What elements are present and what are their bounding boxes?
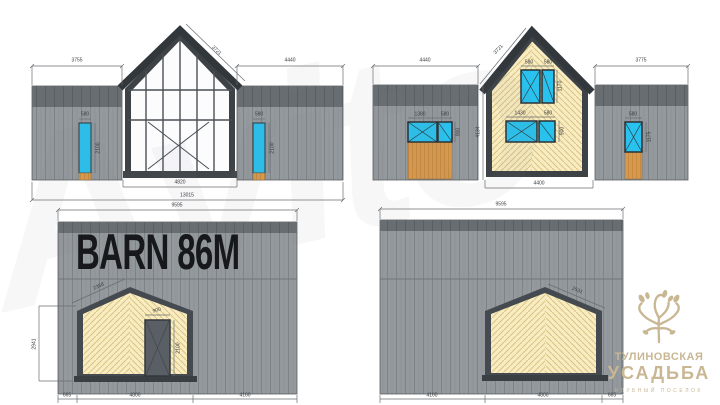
dim-rear-right-wall: 3775 <box>635 59 646 64</box>
front-left-door <box>79 123 91 173</box>
rear-elevation-drawing <box>371 28 690 188</box>
dim-rear-right-window-w: 580 <box>629 113 637 118</box>
dim-rear-wing-window-small: 580 <box>441 113 449 118</box>
dim-rear-lower-window-b: 580 <box>544 112 552 117</box>
front-left-door-step <box>79 173 91 180</box>
dim-sideR-seg-left: 4160 <box>426 394 437 399</box>
dim-front-left-door-h: 2100 <box>97 142 102 153</box>
dim-rear-gable-width: 4400 <box>533 182 544 187</box>
dim-rear-upper-window-b: 580 <box>544 61 552 66</box>
front-glazing-sill <box>123 171 237 178</box>
dim-rear-wing-window-w: 1380 <box>414 113 425 118</box>
dim-rear-upper-window-a: 580 <box>525 61 533 66</box>
front-elevation-drawing <box>30 24 345 202</box>
dim-sideR-seg-right: 665 <box>608 394 616 399</box>
logo-line1: ТУЛИНОВСКАЯ <box>598 351 720 363</box>
rear-right-window <box>625 122 642 152</box>
dim-sideR-length: 9595 <box>495 203 506 208</box>
logo-line3: клубный поселок <box>598 388 720 394</box>
dim-rear-upper-window-h: 1170 <box>559 81 564 92</box>
sideR-wall-band <box>380 220 623 231</box>
front-right-wall-band <box>237 86 343 107</box>
dim-front-right-door-w: 580 <box>255 113 263 118</box>
front-left-wall-band <box>32 86 122 107</box>
dim-rear-lower-window-a: 1430 <box>514 112 525 117</box>
sideL-door <box>145 320 170 376</box>
tree-icon <box>618 286 700 344</box>
dim-sideL-seg-mid: 4800 <box>129 394 140 399</box>
dim-sideL-seg-right: 4160 <box>239 394 250 399</box>
dim-front-left-door-w: 580 <box>81 113 89 118</box>
dim-front-total-width: 13015 <box>180 194 194 199</box>
front-right-door-step <box>253 173 265 180</box>
dim-rear-lower-window-h: 900 <box>561 127 566 135</box>
dim-sideR-seg-mid: 4800 <box>537 394 548 399</box>
logo-line2: УСАДЬБА <box>598 363 720 384</box>
rear-right-wall-band <box>595 85 688 106</box>
rear-left-wall-band <box>373 85 478 106</box>
developer-logo: ТУЛИНОВСКАЯ УСАДЬБА клубный поселок <box>598 286 720 394</box>
dim-front-glazing-width: 4820 <box>174 181 185 186</box>
wall-title: BARN 86M <box>76 227 239 277</box>
blueprint-canvas: Avito BARN 86M 3755 4440 3721 580 2100 5… <box>0 0 720 405</box>
dim-rear-wing-window-h: 900 <box>457 128 462 136</box>
rear-right-wood-panel <box>625 152 642 179</box>
dim-rear-eave-height: 4134 <box>477 126 482 137</box>
rear-left-windows <box>408 122 452 142</box>
dim-sideL-seg-left: 665 <box>63 394 71 399</box>
sideL-porch-sill <box>74 376 197 382</box>
dim-rear-left-wall: 4440 <box>419 59 430 64</box>
dim-sideL-wall-height: 2941 <box>33 338 38 349</box>
side-right-drawing <box>378 207 625 403</box>
dim-front-right-wall: 4440 <box>284 59 295 64</box>
dim-sideL-length: 9595 <box>171 204 182 209</box>
rear-left-wood-panel <box>408 142 452 179</box>
dim-sideL-door-h: 2100 <box>177 342 182 353</box>
front-right-door <box>253 123 265 173</box>
dim-rear-right-window-h: 1175 <box>648 132 653 143</box>
dim-front-left-wall: 3755 <box>71 59 82 64</box>
dim-front-right-door-h: 2100 <box>271 142 276 153</box>
sideR-porch-sill <box>482 375 608 381</box>
